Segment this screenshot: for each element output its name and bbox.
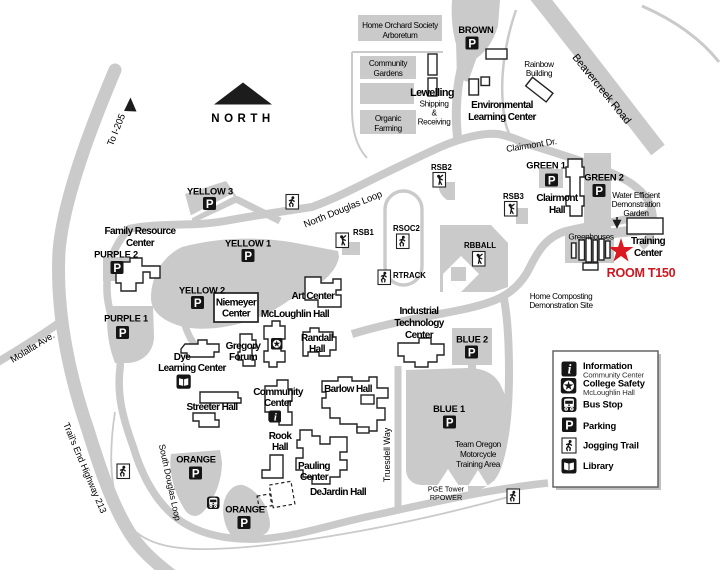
svg-text:Forum: Forum (229, 352, 258, 363)
svg-text:Center: Center (634, 248, 663, 259)
svg-text:RSB3: RSB3 (503, 192, 524, 201)
svg-text:Center: Center (222, 309, 251, 320)
svg-text:Organic: Organic (375, 114, 401, 123)
svg-text:Pauling: Pauling (298, 461, 330, 472)
svg-text:PURPLE 2: PURPLE 2 (94, 250, 138, 260)
svg-text:RSB1: RSB1 (353, 228, 374, 237)
svg-text:&: & (431, 109, 437, 118)
svg-text:ORANGE: ORANGE (225, 505, 265, 515)
svg-text:Hall: Hall (309, 344, 326, 355)
svg-text:Streeter Hall: Streeter Hall (186, 402, 238, 413)
svg-text:Greenhouses: Greenhouses (568, 233, 614, 242)
svg-text:ROOM T150: ROOM T150 (607, 266, 676, 280)
svg-text:RSOC2: RSOC2 (393, 224, 421, 233)
svg-text:Barlow Hall: Barlow Hall (324, 384, 373, 395)
svg-text:Library: Library (583, 460, 614, 471)
svg-text:Hall: Hall (549, 205, 566, 216)
svg-text:Industrial: Industrial (399, 306, 439, 317)
svg-text:GREEN 2: GREEN 2 (584, 173, 623, 183)
svg-text:Art Center: Art Center (292, 291, 336, 302)
svg-text:RTRACK: RTRACK (393, 271, 426, 280)
svg-text:Training Area: Training Area (456, 460, 501, 469)
svg-text:Team Oregon: Team Oregon (455, 440, 502, 449)
svg-text:Center: Center (405, 330, 434, 341)
svg-text:Technology: Technology (394, 318, 444, 329)
svg-text:Bus Stop: Bus Stop (583, 399, 623, 410)
svg-text:Learning Center: Learning Center (158, 363, 226, 374)
svg-text:YELLOW 3: YELLOW 3 (187, 187, 233, 197)
svg-text:Water Efficient: Water Efficient (612, 191, 661, 200)
svg-text:Home Orchard Society: Home Orchard Society (362, 21, 439, 30)
svg-text:Dye: Dye (174, 352, 192, 363)
svg-text:GREEN 1: GREEN 1 (526, 161, 565, 171)
svg-text:Receiving: Receiving (418, 118, 452, 127)
svg-text:Family Resource: Family Resource (104, 226, 176, 237)
svg-text:Rainbow: Rainbow (524, 60, 554, 69)
svg-text:RPOWER: RPOWER (430, 493, 462, 502)
svg-text:Arboretum: Arboretum (382, 31, 418, 40)
svg-text:Learning Center: Learning Center (468, 112, 536, 123)
svg-text:McLoughlin Hall: McLoughlin Hall (261, 309, 330, 320)
svg-text:Shipping: Shipping (419, 100, 449, 109)
svg-text:Rook: Rook (269, 431, 293, 442)
svg-text:Randall: Randall (301, 333, 334, 344)
svg-text:DeJardin Hall: DeJardin Hall (310, 487, 367, 498)
svg-text:Environmental: Environmental (471, 100, 533, 111)
svg-text:Building: Building (526, 69, 553, 78)
svg-text:Information: Information (583, 360, 633, 371)
svg-text:Center: Center (264, 398, 293, 409)
svg-text:YELLOW 2: YELLOW 2 (179, 286, 225, 296)
svg-text:Home Composting: Home Composting (530, 292, 593, 301)
svg-text:Training: Training (631, 236, 666, 247)
svg-text:Demonstration Site: Demonstration Site (529, 301, 593, 310)
svg-text:P: P (565, 419, 573, 433)
svg-text:Demonstration: Demonstration (612, 200, 661, 209)
svg-text:Gregory: Gregory (226, 341, 262, 352)
svg-text:Lewelling: Lewelling (410, 87, 454, 99)
svg-text:Community: Community (253, 387, 304, 398)
svg-text:Jogging Trail: Jogging Trail (583, 440, 639, 451)
svg-text:McLoughlin Hall: McLoughlin Hall (583, 388, 635, 397)
svg-text:ORANGE: ORANGE (176, 455, 216, 465)
svg-text:Community: Community (369, 59, 409, 68)
svg-text:Truesdell Way: Truesdell Way (382, 427, 392, 482)
svg-text:RSB2: RSB2 (431, 163, 452, 172)
svg-text:NORTH: NORTH (211, 113, 274, 125)
svg-text:BROWN: BROWN (458, 25, 494, 35)
svg-text:Hall: Hall (272, 442, 289, 453)
svg-text:RBBALL: RBBALL (464, 241, 496, 250)
svg-text:BLUE 2: BLUE 2 (456, 335, 488, 345)
svg-text:Niemeyer: Niemeyer (216, 298, 257, 309)
svg-text:YELLOW 1: YELLOW 1 (225, 239, 271, 249)
svg-text:Gardens: Gardens (374, 69, 403, 78)
svg-text:BLUE 1: BLUE 1 (433, 404, 465, 414)
svg-text:Garden: Garden (623, 209, 649, 218)
svg-text:Farming: Farming (374, 124, 402, 133)
svg-text:Clairmont: Clairmont (536, 193, 579, 204)
svg-text:Center: Center (126, 238, 155, 249)
svg-text:Community Center: Community Center (583, 371, 645, 380)
svg-text:Motorcycle: Motorcycle (460, 450, 497, 459)
svg-text:PURPLE 1: PURPLE 1 (104, 314, 148, 324)
svg-text:Parking: Parking (583, 420, 616, 431)
svg-text:Center: Center (300, 472, 329, 483)
